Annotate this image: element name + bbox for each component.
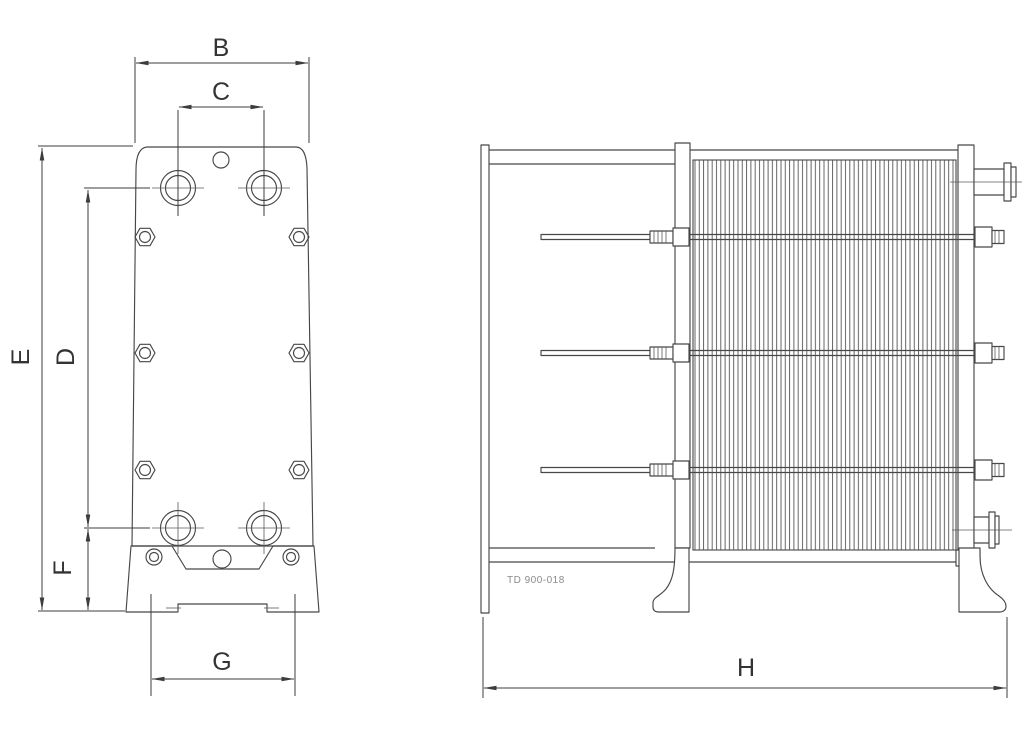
dimension-label-e: E [7, 349, 35, 366]
dimension-F: F [49, 529, 88, 610]
foot-hole-left-inner [150, 553, 159, 562]
heat-exchanger-dimension-drawing: B C E D F [0, 0, 1024, 747]
tie-bolt-nut-right [975, 227, 992, 247]
hex-nut [135, 228, 155, 245]
fixed-frame-plate [958, 145, 974, 550]
foot-bracket-outline [126, 546, 319, 612]
support-column [481, 145, 489, 613]
hex-nut [135, 461, 155, 478]
front-view-dimensions: B C E D F [7, 34, 309, 696]
tie-bolt-thread [650, 464, 673, 476]
technical-drawing-page: B C E D F [0, 0, 1024, 747]
tie-bolt-nut-right [975, 343, 992, 363]
tie-bolt-thread-end [992, 231, 1004, 244]
dimension-H: H [483, 617, 1007, 698]
dimension-label-b: B [213, 34, 230, 62]
hex-nut [135, 344, 155, 361]
dimension-label-f: F [49, 560, 77, 575]
hex-nut [289, 344, 309, 361]
tie-bolt-thread-end [992, 464, 1004, 477]
front-view [126, 147, 319, 612]
pressure-plate-foot [653, 548, 689, 612]
tie-bolt-nut-left [673, 344, 689, 362]
dimension-label-c: C [212, 78, 230, 106]
foot-hole-left [146, 549, 162, 565]
foot-hole-right-inner [287, 553, 296, 562]
top-center-hole [213, 152, 229, 168]
dimension-label-h: H [737, 654, 755, 682]
tie-bolt-rod [541, 468, 650, 473]
drawing-code: TD 900-018 [507, 575, 565, 586]
dimension-G: G [151, 594, 295, 696]
bottom-center-hole [213, 550, 231, 568]
tie-bolt-thread [650, 347, 673, 359]
hex-nut [289, 228, 309, 245]
tie-bolt-nut-left [673, 461, 689, 479]
dimension-label-g: G [212, 648, 231, 676]
dimension-label-d: D [52, 348, 80, 366]
tie-bolt-nut-left [673, 228, 689, 246]
tie-bolt-rod [541, 351, 650, 356]
side-view: TD 900-018 [481, 143, 1022, 613]
tie-bolt-rod [541, 235, 650, 240]
hex-nut [289, 461, 309, 478]
tie-bolt-thread [650, 231, 673, 243]
side-view-dimensions: H [483, 617, 1007, 698]
dimension-E: E [7, 146, 133, 611]
tie-bolt-thread-end [992, 347, 1004, 360]
frame-plate-foot [959, 548, 1006, 612]
tie-bolt-nut-right [975, 460, 992, 480]
frame-plate-outline [132, 147, 313, 546]
foot-hole-right [283, 549, 299, 565]
tie-bolt-nuts-front [135, 228, 309, 478]
